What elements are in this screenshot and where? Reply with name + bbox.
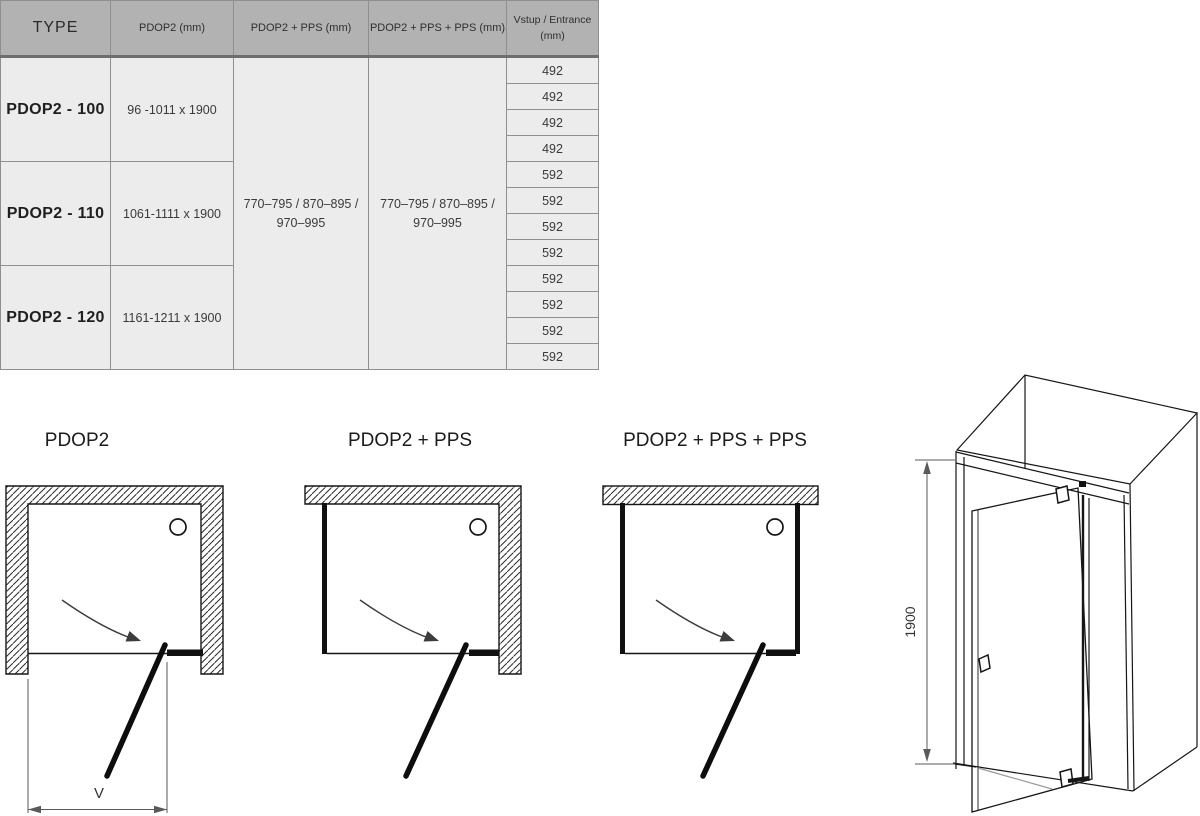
door-swing-arrowhead (126, 631, 142, 642)
open-door-panel (703, 645, 763, 776)
door-handle (979, 655, 990, 672)
top-pivot-bracket (1056, 486, 1069, 503)
open-door-panel (107, 645, 165, 776)
fixed-segment (469, 650, 499, 657)
top-bar-upper (956, 452, 1129, 493)
top-view-pdop2-pps-pps (603, 486, 818, 776)
bottom-pivot-bracket (1060, 769, 1073, 787)
technical-drawings (0, 0, 1200, 816)
open-door-panel (406, 645, 466, 776)
door-swing-arrowhead (424, 631, 440, 642)
datasheet-page: TYPE PDOP2 (mm) PDOP2 + PPS (mm) PDOP2 +… (0, 0, 1200, 816)
top-view-pdop2-pps (305, 486, 521, 776)
top-bar-lower (956, 463, 1129, 504)
pps-fixed-wall-left (620, 503, 625, 654)
open-door-panel (972, 488, 1092, 812)
right-post-inner (1124, 495, 1128, 789)
right-post-outer (1130, 484, 1134, 791)
pps-fixed-wall-left (322, 503, 327, 654)
iso-enclosure-drawing (915, 375, 1197, 812)
masonry-wall (603, 486, 818, 505)
shower-drain-icon (170, 519, 186, 535)
door-swing-arrow (62, 600, 128, 637)
enclosure-top-face (957, 375, 1197, 484)
shower-drain-icon (470, 519, 486, 535)
masonry-wall (305, 486, 521, 674)
top-view-pdop2 (6, 486, 223, 813)
fixed-segment (167, 650, 203, 657)
masonry-wall (6, 486, 223, 674)
height-dimension (915, 460, 955, 764)
door-swing-arrowhead (720, 631, 736, 642)
shower-drain-icon (767, 519, 783, 535)
door-swing-arrow (360, 600, 426, 637)
door-swing-arrow (656, 600, 722, 637)
pps-fixed-wall-right (795, 503, 800, 654)
right-bottom-edge (1133, 747, 1197, 791)
fixed-segment (766, 650, 796, 657)
top-hinge-block (1079, 481, 1086, 487)
threshold-gray-line (978, 768, 1052, 789)
